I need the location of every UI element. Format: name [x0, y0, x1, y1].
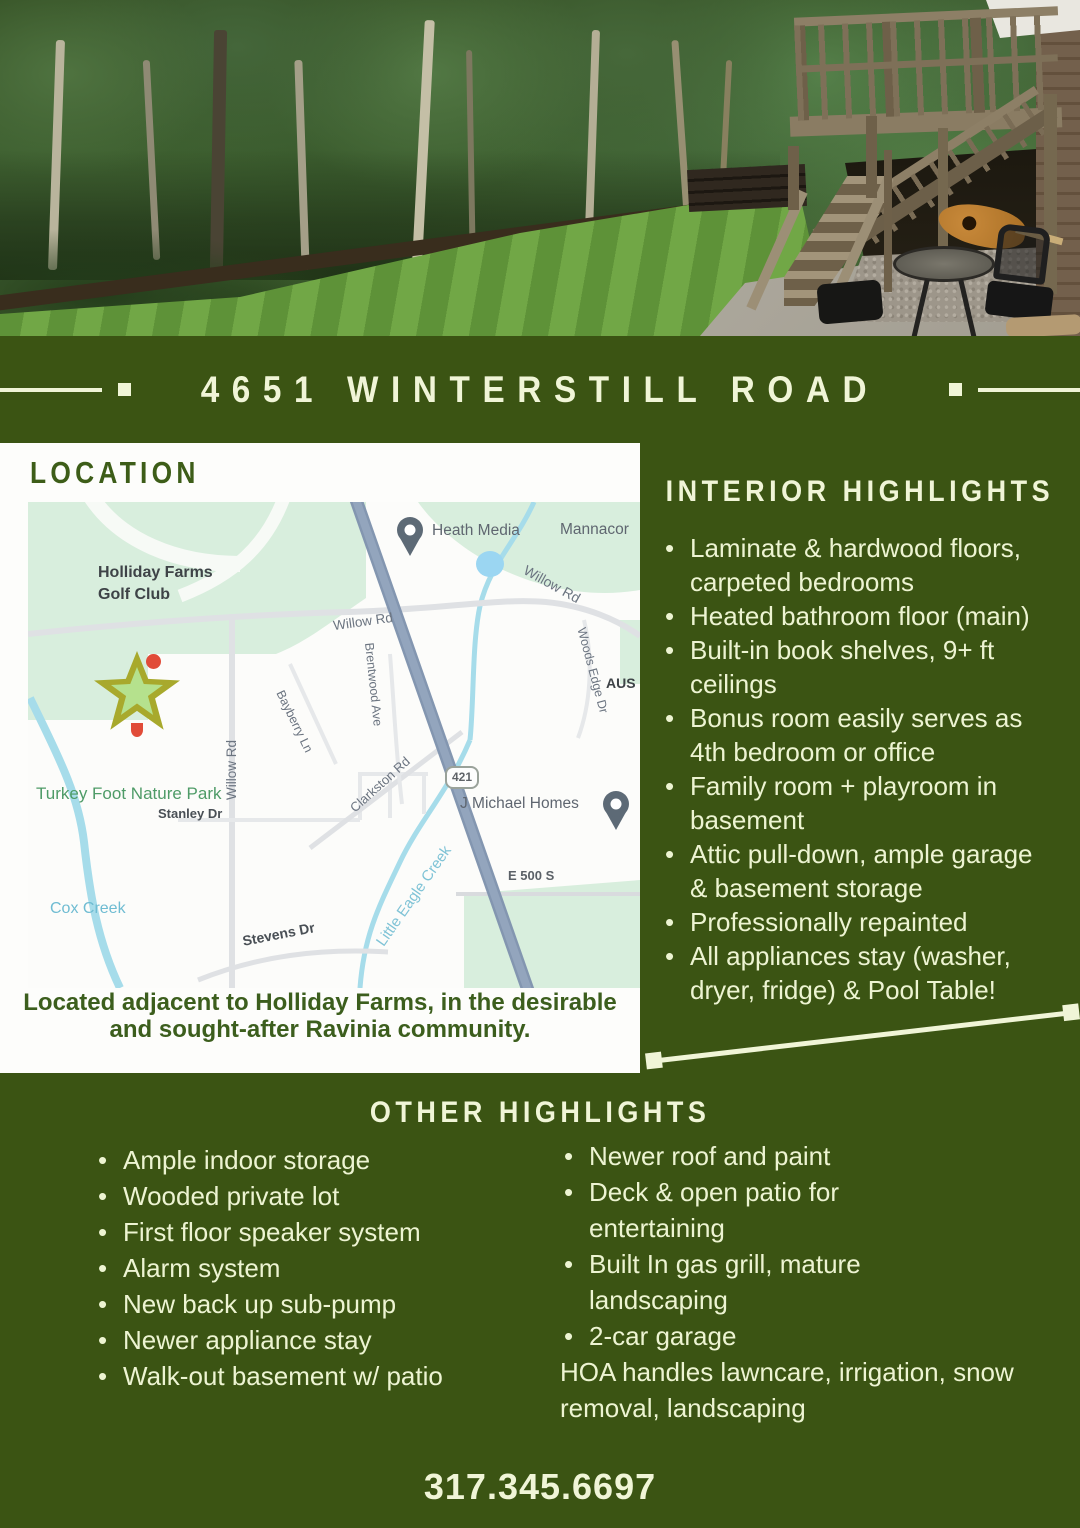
- map-label-e-500-s: E 500 S: [508, 868, 554, 883]
- map-pin-red: [131, 723, 143, 737]
- map-label-aus: AUS: [606, 672, 636, 694]
- other-highlights-heading: OTHER HIGHLIGHTS: [0, 1096, 1080, 1130]
- list-item: First floor speaker system: [96, 1214, 516, 1250]
- hoa-note: HOA handles lawncare, irrigation, snow r…: [560, 1354, 1030, 1426]
- list-item: Laminate & hardwood floors, carpeted bed…: [663, 531, 1041, 599]
- map-label-cox-creek: Cox Creek: [50, 900, 126, 918]
- location-map: Holliday Farms Golf Club Heath Media Man…: [28, 502, 640, 988]
- list-item: Newer appliance stay: [96, 1322, 516, 1358]
- title-rule-right: [978, 388, 1080, 392]
- list-item: Walk-out basement w/ patio: [96, 1358, 516, 1394]
- list-item: Alarm system: [96, 1250, 516, 1286]
- deck-post: [788, 146, 799, 210]
- route-421-shield: 421: [445, 766, 479, 789]
- list-item: Heated bathroom floor (main): [663, 599, 1041, 633]
- map-label-mannacor: Mannacor: [560, 521, 629, 539]
- list-item: Built-in book shelves, 9+ ft ceilings: [663, 633, 1041, 701]
- location-heading: LOCATION: [30, 455, 640, 491]
- patio-table: [893, 246, 995, 282]
- list-item: New back up sub-pump: [96, 1286, 516, 1322]
- list-item: Deck & open patio for entertaining: [562, 1174, 902, 1246]
- list-item: Newer roof and paint: [562, 1138, 902, 1174]
- patio-chair: [816, 279, 883, 324]
- list-item: Attic pull-down, ample garage & basement…: [663, 837, 1041, 905]
- list-item: Professionally repainted: [663, 905, 1041, 939]
- map-label-golf-club: Holliday Farms Golf Club: [98, 562, 213, 606]
- list-item: Bonus room easily serves as 4th bedroom …: [663, 701, 1041, 769]
- decorative-diagonal-line: [650, 1010, 1076, 1064]
- patio-chair: [993, 223, 1051, 285]
- paver-stone: [1006, 314, 1080, 336]
- map-label-turkey-foot-nature-park: Turkey Foot Nature Park: [36, 784, 222, 804]
- map-label-heath-media: Heath Media: [432, 522, 520, 540]
- interior-highlights-list: Laminate & hardwood floors, carpeted bed…: [663, 531, 1041, 1007]
- real-estate-flyer: 4651 WINTERSTILL ROAD LOCATION: [0, 0, 1080, 1528]
- j-michael-homes-pin: [603, 791, 629, 830]
- map-label-j-michael-homes: J Michael Homes: [460, 795, 579, 813]
- phone-number: 317.345.6697: [0, 1466, 1080, 1508]
- list-item: Built In gas grill, mature landscaping: [562, 1246, 902, 1318]
- title-square-left: [118, 383, 131, 396]
- map-label-stanley-dr: Stanley Dr: [158, 806, 222, 821]
- interior-highlights-heading: INTERIOR HIGHLIGHTS: [640, 475, 1080, 509]
- map-caption: Located adjacent to Holliday Farms, in t…: [0, 989, 640, 1043]
- interior-highlights-section: INTERIOR HIGHLIGHTS Laminate & hardwood …: [640, 443, 1080, 1007]
- heath-media-pin: [397, 517, 423, 556]
- title-band: 4651 WINTERSTILL ROAD: [0, 336, 1080, 443]
- list-item: All appliances stay (washer, dryer, frid…: [663, 939, 1041, 1007]
- other-highlights-right-list: Newer roof and paintDeck & open patio fo…: [562, 1138, 902, 1354]
- list-item: Ample indoor storage: [96, 1142, 516, 1178]
- title-square-right: [949, 383, 962, 396]
- map-pin-red: [146, 654, 161, 669]
- deck-post: [884, 150, 892, 292]
- page-title: 4651 WINTERSTILL ROAD: [163, 369, 917, 411]
- list-item: Family room + playroom in basement: [663, 769, 1041, 837]
- map-label-willow-rd-south: Willow Rd: [224, 740, 239, 800]
- other-highlights-left-list: Ample indoor storageWooded private lotFi…: [96, 1142, 516, 1394]
- location-panel: LOCATION: [0, 443, 640, 1073]
- title-rule-left: [0, 388, 102, 392]
- list-item: 2-car garage: [562, 1318, 902, 1354]
- other-highlights-section: OTHER HIGHLIGHTS Ample indoor storageWoo…: [0, 1096, 1080, 1130]
- deck-post: [866, 116, 877, 198]
- list-item: Wooded private lot: [96, 1178, 516, 1214]
- backyard-photo: [0, 0, 1080, 336]
